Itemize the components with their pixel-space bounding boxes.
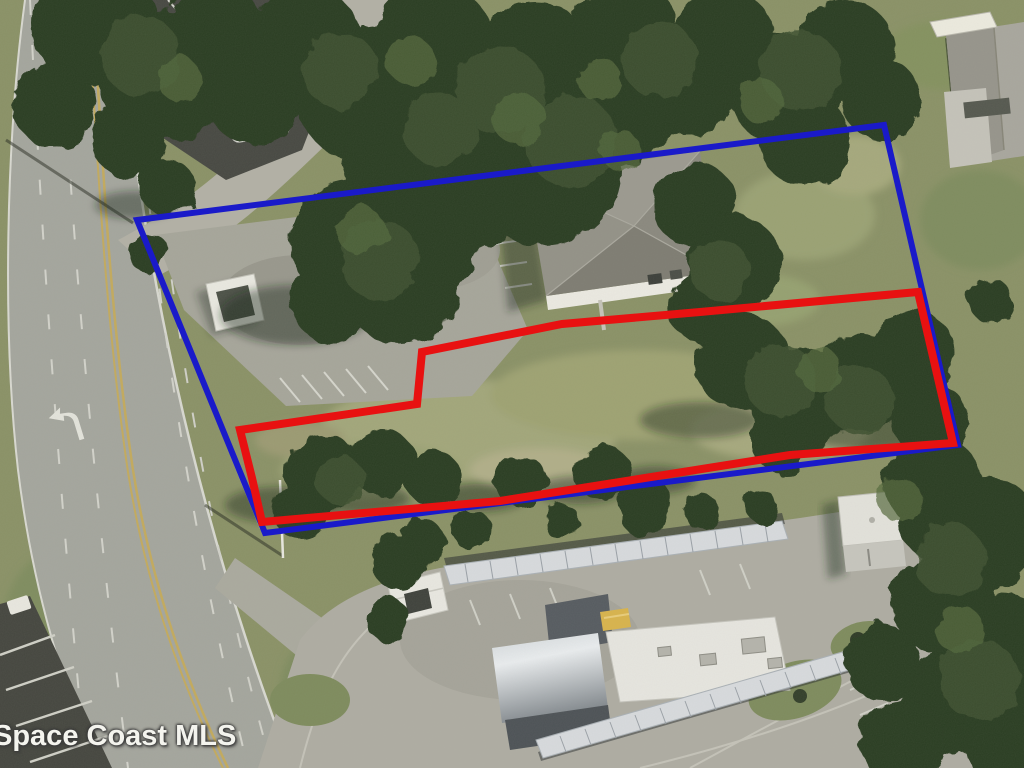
watermark: Space Coast MLS bbox=[0, 720, 236, 753]
aerial-photo: Space Coast MLS bbox=[0, 0, 1024, 768]
aerial-scene bbox=[0, 0, 1024, 768]
photo-grain bbox=[0, 0, 1024, 768]
